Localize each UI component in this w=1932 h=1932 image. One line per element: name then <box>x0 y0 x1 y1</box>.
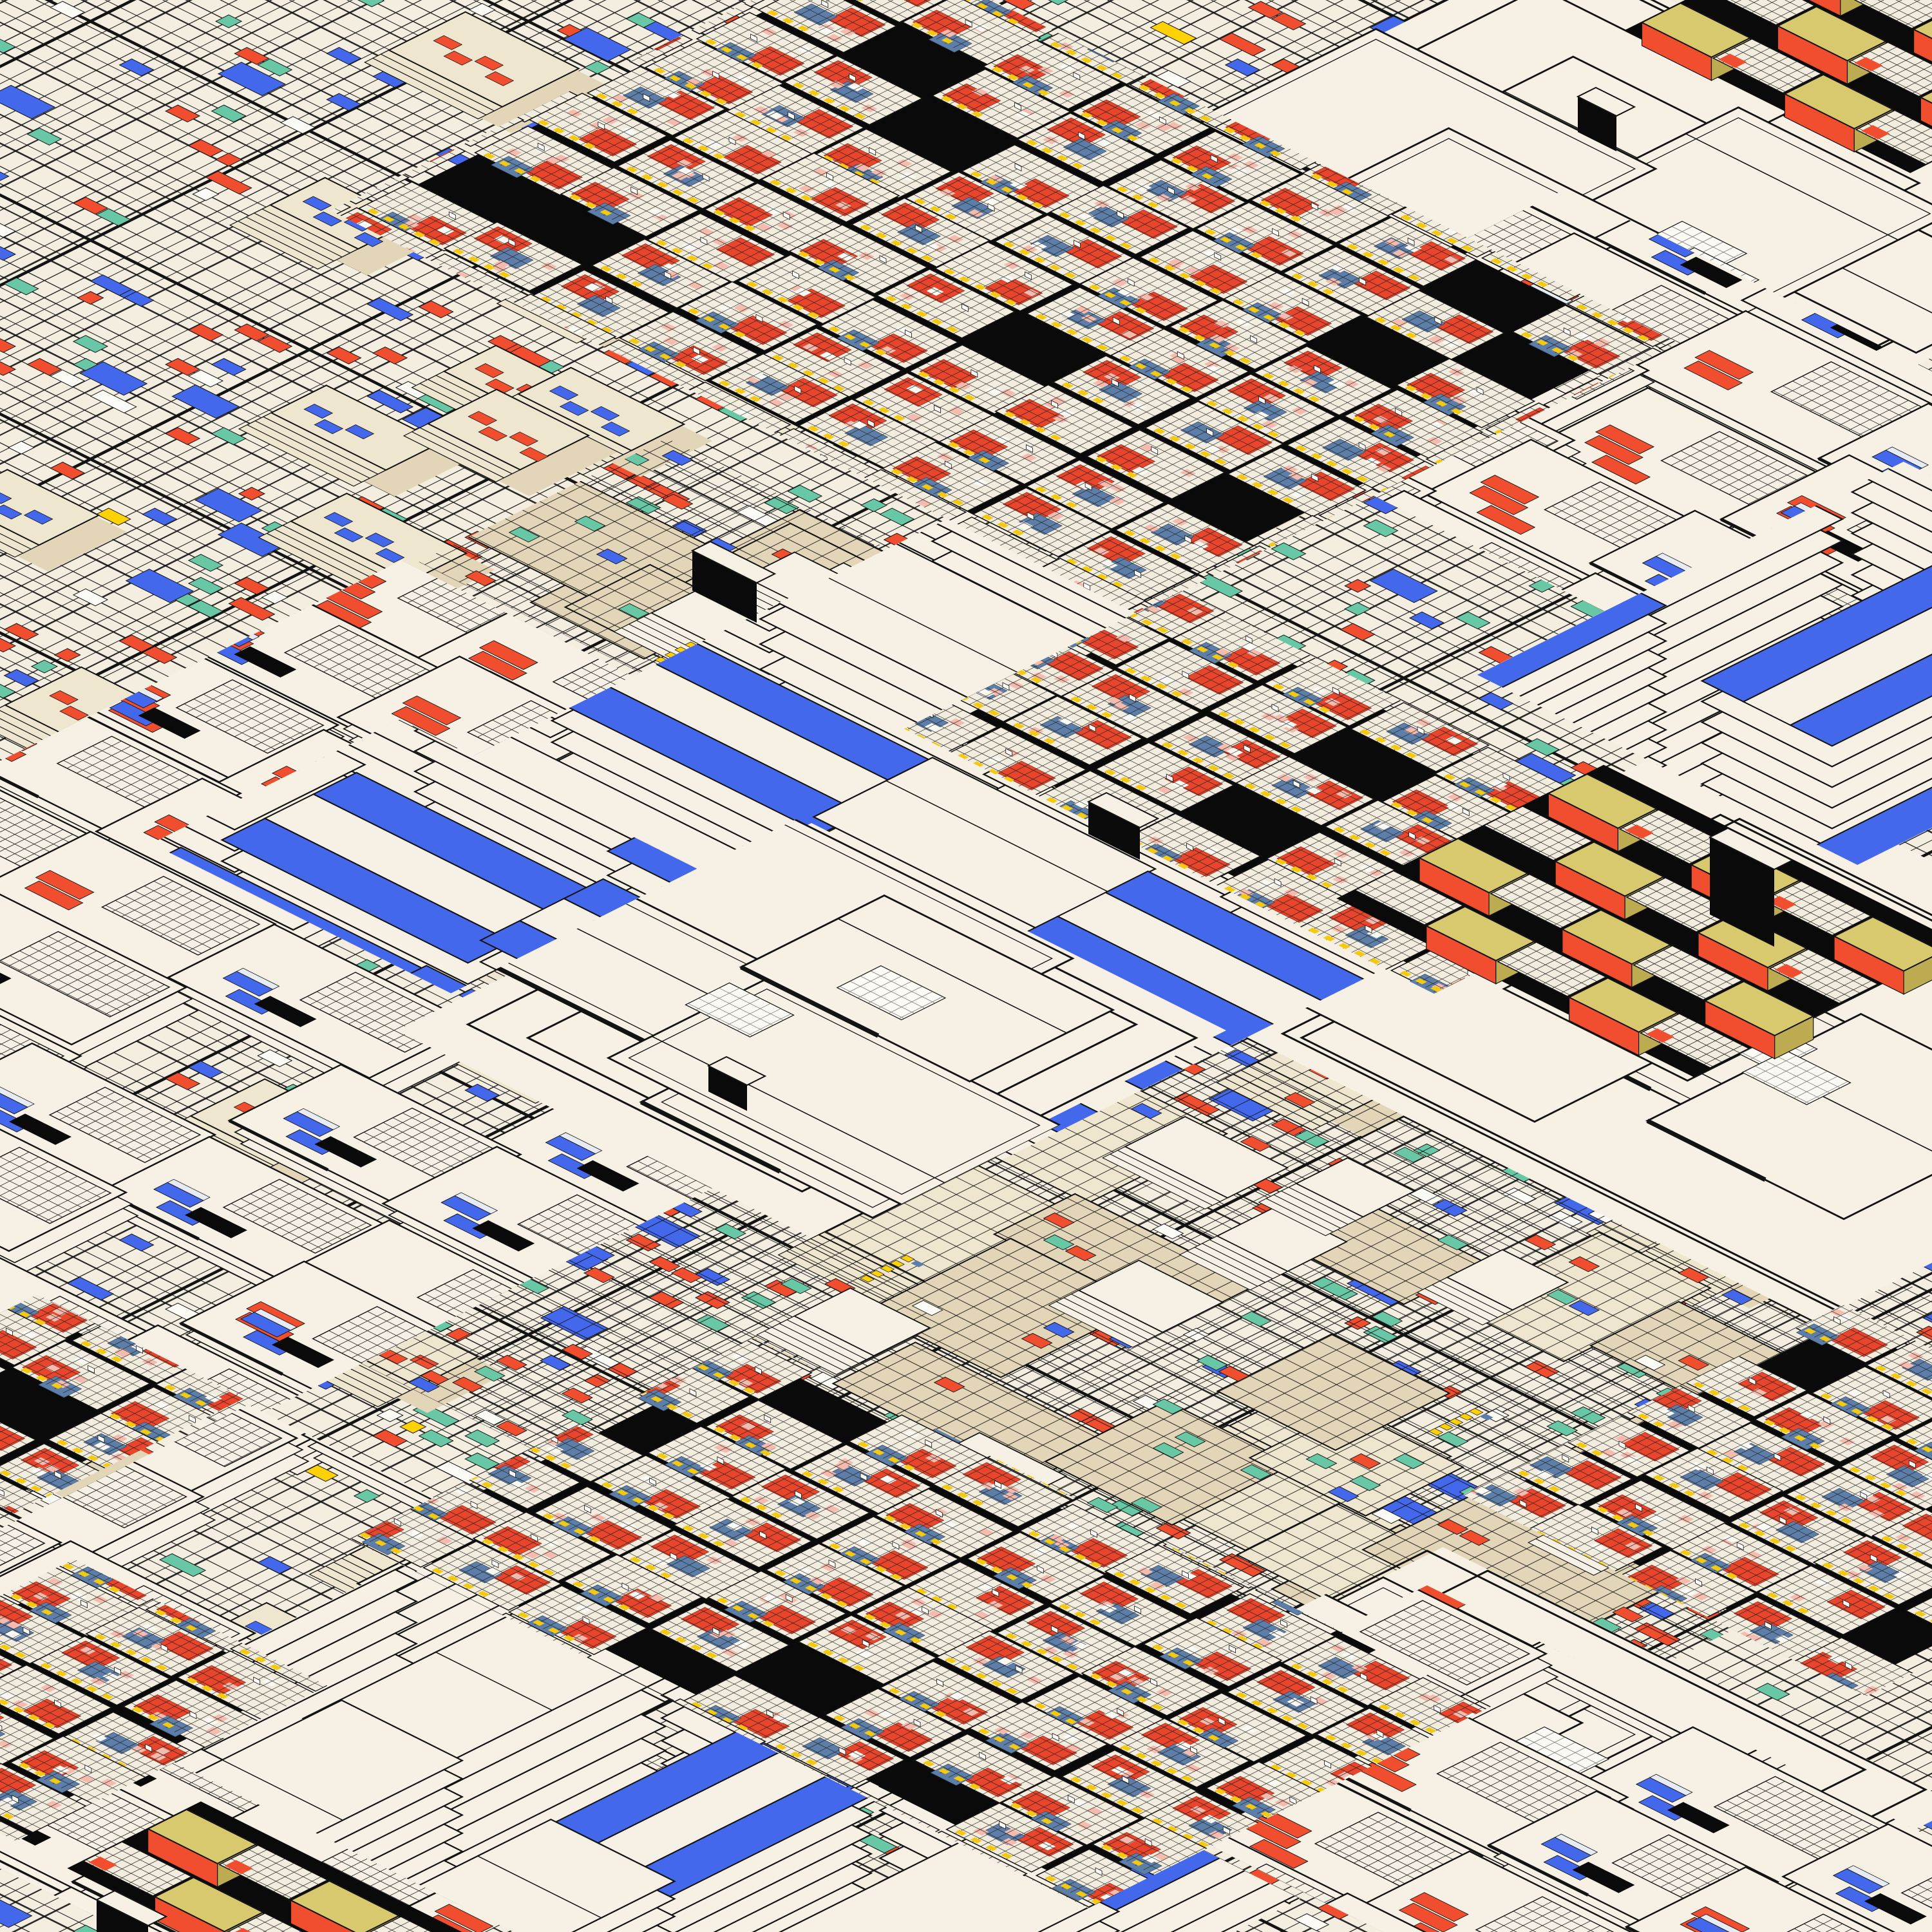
artwork <box>0 0 1932 1932</box>
isometric-artwork-canvas <box>0 0 1932 1932</box>
